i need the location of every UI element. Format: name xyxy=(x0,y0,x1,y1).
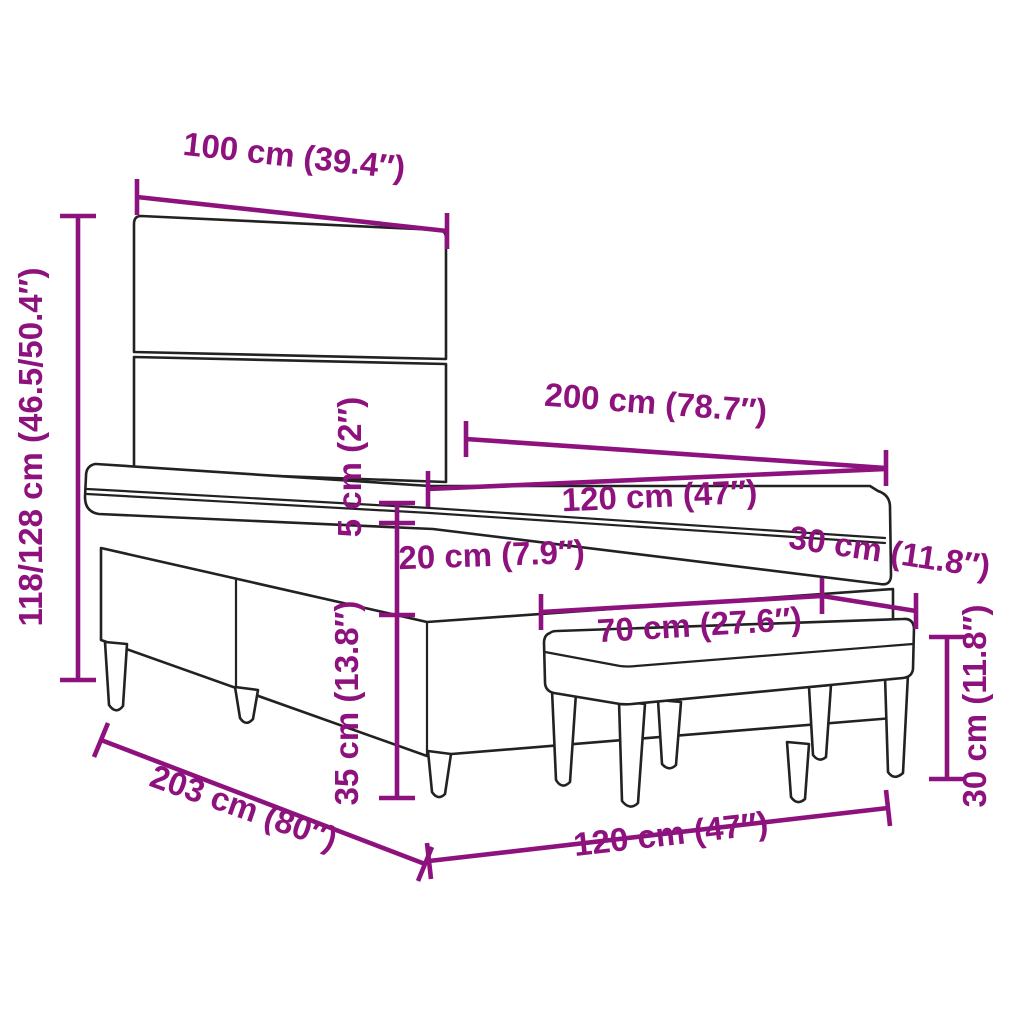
dim-frame-width-group: 120 cm (47″) xyxy=(427,790,890,879)
dim-frame-length: 203 cm (80″) xyxy=(145,757,342,857)
dim-frame-length-group: 203 cm (80″) xyxy=(94,723,432,881)
bench-leg xyxy=(658,700,681,768)
bed-leg xyxy=(235,687,258,723)
dim-overall-height: 118/128 cm (46.5/50.4″) xyxy=(12,268,49,627)
product-dimension-diagram: 100 cm (39.4″) 118/128 cm (46.5/50.4″) 2… xyxy=(0,0,1024,1024)
headboard-upper-panel xyxy=(134,216,446,359)
dim-leg-height: 35 cm (13.8″) xyxy=(328,601,365,806)
headboard-lower-panel xyxy=(134,357,446,482)
dim-bench-height: 30 cm (11.8″) xyxy=(956,605,993,808)
bed-illustration xyxy=(85,216,893,802)
dim-bed-length: 200 cm (78.7″) xyxy=(543,376,768,430)
dim-headboard-width: 100 cm (39.4″) xyxy=(181,125,407,186)
bed-leg xyxy=(105,642,127,710)
diagram-svg: 100 cm (39.4″) 118/128 cm (46.5/50.4″) 2… xyxy=(0,0,1024,1024)
bench-leg xyxy=(552,690,576,786)
dim-box-height: 20 cm (7.9″) xyxy=(398,533,586,576)
bed-leg xyxy=(787,742,809,802)
bench-leg xyxy=(619,701,645,807)
dim-topper-thickness: 5 cm (2″) xyxy=(331,397,368,538)
dim-bench-height-group: 30 cm (11.8″) xyxy=(929,605,993,808)
dim-frame-width: 120 cm (47″) xyxy=(571,804,770,863)
bench-leg xyxy=(885,674,908,777)
bed-leg xyxy=(428,751,451,797)
dim-overall-height-group: 118/128 cm (46.5/50.4″) xyxy=(12,216,96,680)
bench-leg xyxy=(809,685,831,760)
